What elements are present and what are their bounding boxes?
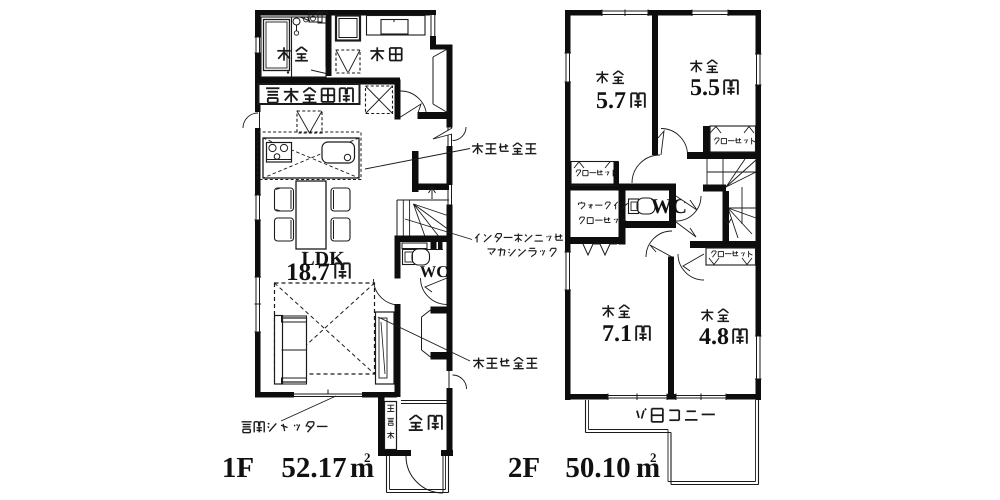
svg-text:WC: WC (420, 262, 448, 281)
svg-text:2: 2 (650, 450, 657, 465)
svg-text:m: m (636, 452, 660, 484)
svg-text:52.17: 52.17 (281, 452, 346, 484)
svg-text:5.7: 5.7 (596, 88, 626, 114)
svg-text:2: 2 (364, 450, 371, 465)
svg-text:7.1: 7.1 (602, 321, 632, 347)
svg-text:2F: 2F (508, 452, 540, 484)
svg-text:18.7: 18.7 (286, 259, 330, 286)
svg-text:4.8: 4.8 (699, 324, 729, 350)
svg-text:1F: 1F (222, 452, 254, 484)
svg-text:5.5: 5.5 (690, 75, 720, 101)
svg-text:m: m (350, 452, 374, 484)
svg-text:50.10: 50.10 (565, 452, 630, 484)
